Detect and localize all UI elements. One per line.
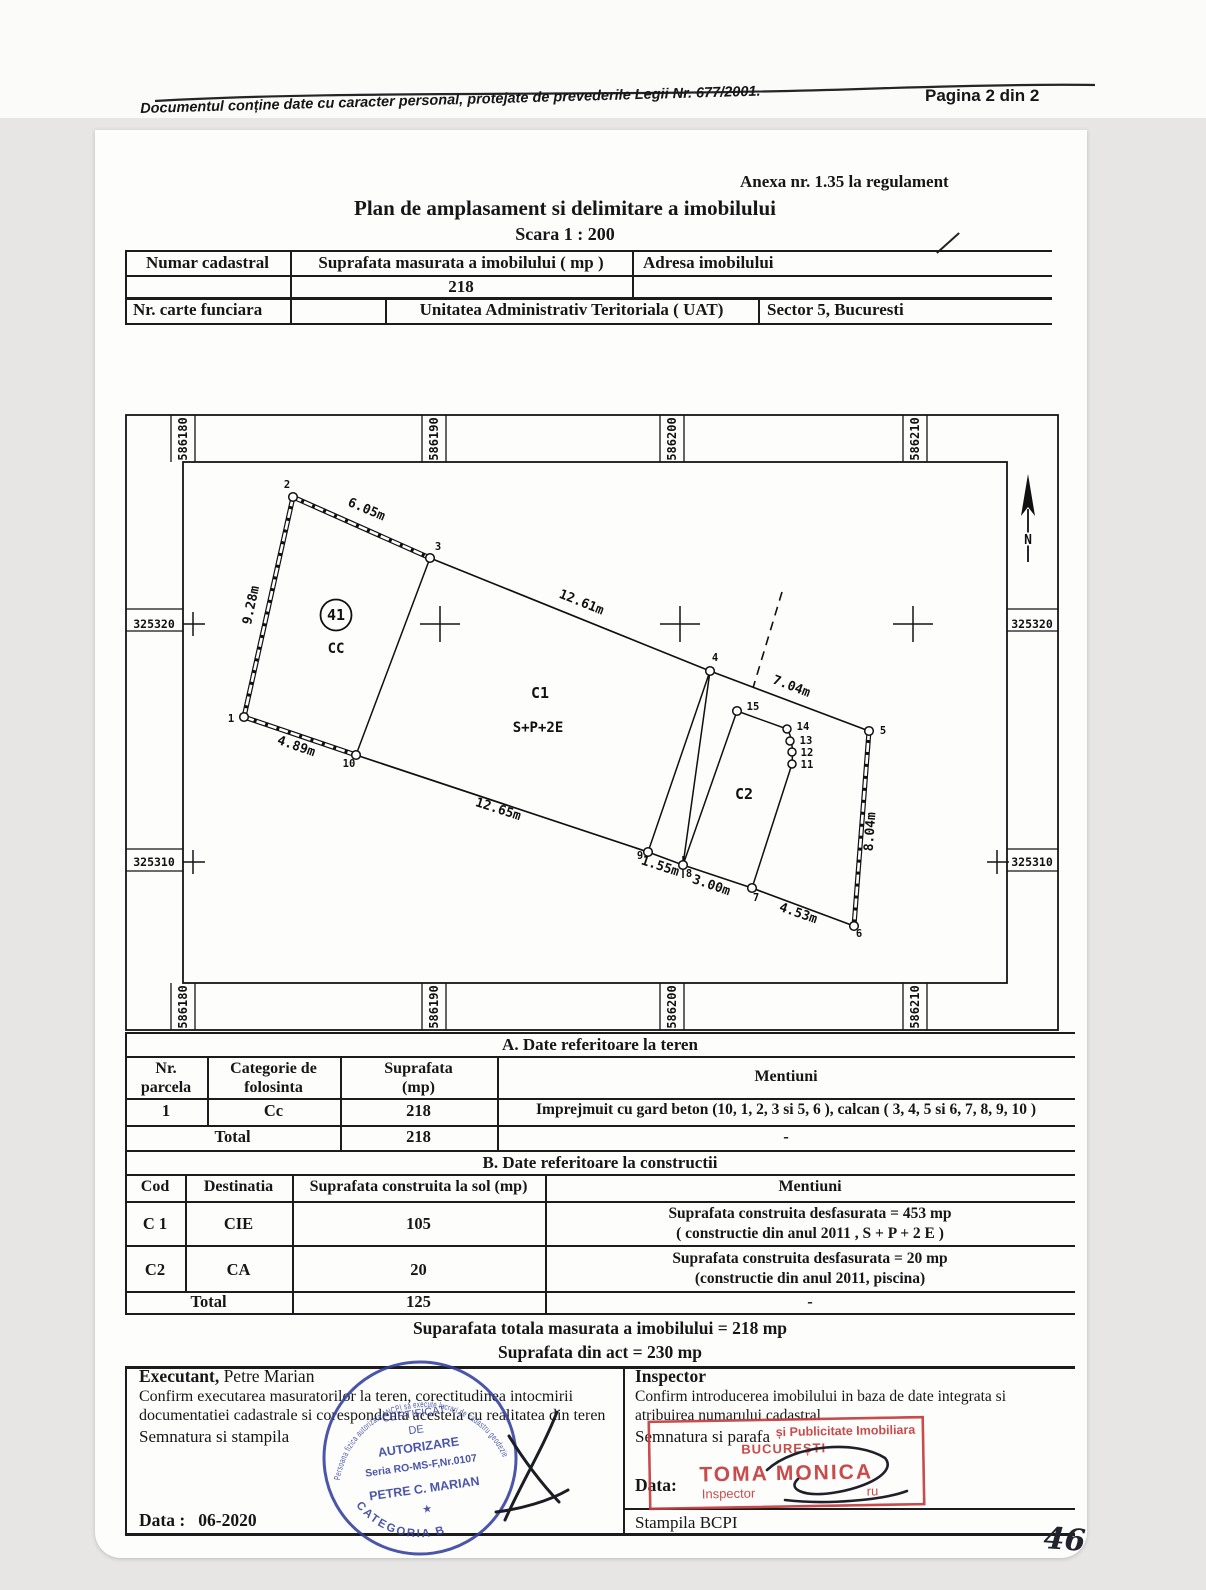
uat-value: Sector 5, Bucuresti <box>767 300 904 320</box>
dimension-labels: 9.28m 6.05m 12.61m 7.04m 8.04m 4.53m 3.0… <box>240 495 879 927</box>
svg-text:41: 41 <box>327 606 345 624</box>
suprafata-masurata-value: 218 <box>290 277 632 297</box>
site-plan: 586180 586190 586200 586210 586180 58619… <box>125 410 1065 1035</box>
svg-text:586210: 586210 <box>908 985 922 1028</box>
svg-text:586180: 586180 <box>176 417 190 460</box>
inspector-signature <box>767 1447 907 1502</box>
svg-text:1.55m: 1.55m <box>639 853 681 879</box>
row-c2-mentiuni: Suprafata construita desfasurata = 20 mp… <box>545 1249 1075 1289</box>
svg-text:S+P+2E: S+P+2E <box>513 720 564 736</box>
point-labels: 1 2 3 4 5 6 7 8 9 10 11 12 13 14 15 <box>228 479 886 940</box>
col-mentiuni-a: Mentiuni <box>497 1068 1075 1086</box>
col-mentiuni-b: Mentiuni <box>545 1178 1075 1196</box>
row-a-suprafata: 218 <box>340 1101 497 1121</box>
table-b-title: B. Date referitoare la constructii <box>125 1153 1075 1173</box>
svg-text:5: 5 <box>880 725 886 737</box>
executant-signature <box>496 1412 568 1520</box>
svg-text:9.28m: 9.28m <box>240 584 263 626</box>
table-b-total-label: Total <box>125 1292 292 1312</box>
svg-text:12.65m: 12.65m <box>473 795 522 824</box>
col-suprafata: Suprafata (mp) <box>340 1059 497 1097</box>
fence-edges <box>244 497 869 926</box>
row-c2-dest: CA <box>185 1260 292 1280</box>
svg-text:1: 1 <box>228 713 234 725</box>
row-c2-cod: C2 <box>125 1260 185 1280</box>
svg-text:325320: 325320 <box>1011 617 1053 631</box>
row-a-nr: 1 <box>125 1101 207 1121</box>
uat-label: Unitatea Administrativ Teritoriala ( UAT… <box>385 300 758 320</box>
row-c1-mentiuni: Suprafata construita desfasurata = 453 m… <box>545 1204 1075 1244</box>
svg-text:14: 14 <box>797 721 810 733</box>
svg-text:325310: 325310 <box>1011 855 1053 869</box>
svg-text:586200: 586200 <box>665 417 679 460</box>
numar-cadastral-label: Numar cadastral <box>125 253 290 273</box>
svg-text:8: 8 <box>686 868 692 880</box>
svg-text:586190: 586190 <box>427 985 441 1028</box>
svg-text:586210: 586210 <box>908 417 922 460</box>
svg-text:325310: 325310 <box>133 855 175 869</box>
svg-text:3.00m: 3.00m <box>690 872 732 899</box>
svg-text:586180: 586180 <box>176 985 190 1028</box>
table-a-total-value: 218 <box>340 1127 497 1147</box>
row-c1-supr: 105 <box>292 1214 545 1234</box>
svg-text:10: 10 <box>343 758 356 770</box>
svg-text:13: 13 <box>800 735 813 747</box>
annex-label: Anexa nr. 1.35 la regulament <box>740 172 949 192</box>
svg-text:325320: 325320 <box>133 617 175 631</box>
table-a-title: A. Date referitoare la teren <box>125 1035 1075 1055</box>
table-a-total-mentiuni: - <box>497 1127 1075 1147</box>
col-nr-parcela: Nr. parcela <box>125 1059 207 1097</box>
row-c1-cod: C 1 <box>125 1214 185 1234</box>
svg-text:586190: 586190 <box>427 417 441 460</box>
row-a-mentiuni: Imprejmuit cu gard beton (10, 1, 2, 3 si… <box>497 1101 1075 1119</box>
grid-coordinates: 586180 586190 586200 586210 586180 58619… <box>133 417 1053 1028</box>
suprafata-masurata-label: Suprafata masurata a imobilului ( mp ) <box>290 253 632 273</box>
scale-label: Scara 1 : 200 <box>205 224 925 245</box>
scanned-cadastral-document: Documentul conține date cu caracter pers… <box>0 0 1206 1590</box>
page-number-label: Pagina 2 din 2 <box>925 86 1039 106</box>
row-a-categorie: Cc <box>207 1101 340 1121</box>
svg-text:3: 3 <box>435 541 441 553</box>
point-markers <box>240 493 874 931</box>
svg-text:11: 11 <box>801 759 814 771</box>
pool-corner-arc <box>787 729 792 764</box>
page-header-strip: Documentul conține date cu caracter pers… <box>0 0 1206 118</box>
row-c1-dest: CIE <box>185 1214 292 1234</box>
north-arrow-icon: N <box>1021 474 1035 562</box>
total-measured-area: Suparafata totala masurata a imobilului … <box>125 1318 1075 1339</box>
document-card: Anexa nr. 1.35 la regulament Plan de amp… <box>95 130 1087 1558</box>
table-a-total-label: Total <box>125 1127 340 1147</box>
col-suprafata-sol: Suprafata construita la sol (mp) <box>292 1178 545 1196</box>
col-cod: Cod <box>125 1178 185 1196</box>
svg-text:C2: C2 <box>735 785 753 803</box>
svg-text:8.04m: 8.04m <box>862 812 880 852</box>
area-labels: 41 CC C1 S+P+2E C2 <box>321 600 754 804</box>
svg-text:C1: C1 <box>531 684 549 702</box>
svg-text:15: 15 <box>747 701 760 713</box>
svg-text:2: 2 <box>284 479 290 491</box>
adresa-label: Adresa imobilului <box>643 253 774 273</box>
svg-text:586200: 586200 <box>665 985 679 1028</box>
col-categorie: Categorie de folosinta <box>207 1059 340 1097</box>
table-b-total-value: 125 <box>292 1292 545 1312</box>
row-c2-supr: 20 <box>292 1260 545 1280</box>
svg-text:N: N <box>1024 533 1032 548</box>
handwritten-page-number: 46 <box>1042 1521 1086 1558</box>
svg-text:12: 12 <box>801 747 814 759</box>
svg-text:6.05m: 6.05m <box>345 495 387 524</box>
svg-text:4: 4 <box>712 652 718 664</box>
svg-text:CC: CC <box>328 641 345 657</box>
col-destinatia: Destinatia <box>185 1178 292 1196</box>
svg-text:7: 7 <box>753 892 759 904</box>
svg-text:6: 6 <box>856 928 862 940</box>
ink-overlay: 46 <box>95 1360 1087 1558</box>
svg-text:4.53m: 4.53m <box>777 900 819 927</box>
document-title: Plan de amplasament si delimitare a imob… <box>205 196 925 221</box>
table-b-total-mentiuni: - <box>545 1292 1075 1312</box>
carte-funciara-label: Nr. carte funciara <box>133 300 262 320</box>
svg-text:12.61m: 12.61m <box>557 587 606 619</box>
